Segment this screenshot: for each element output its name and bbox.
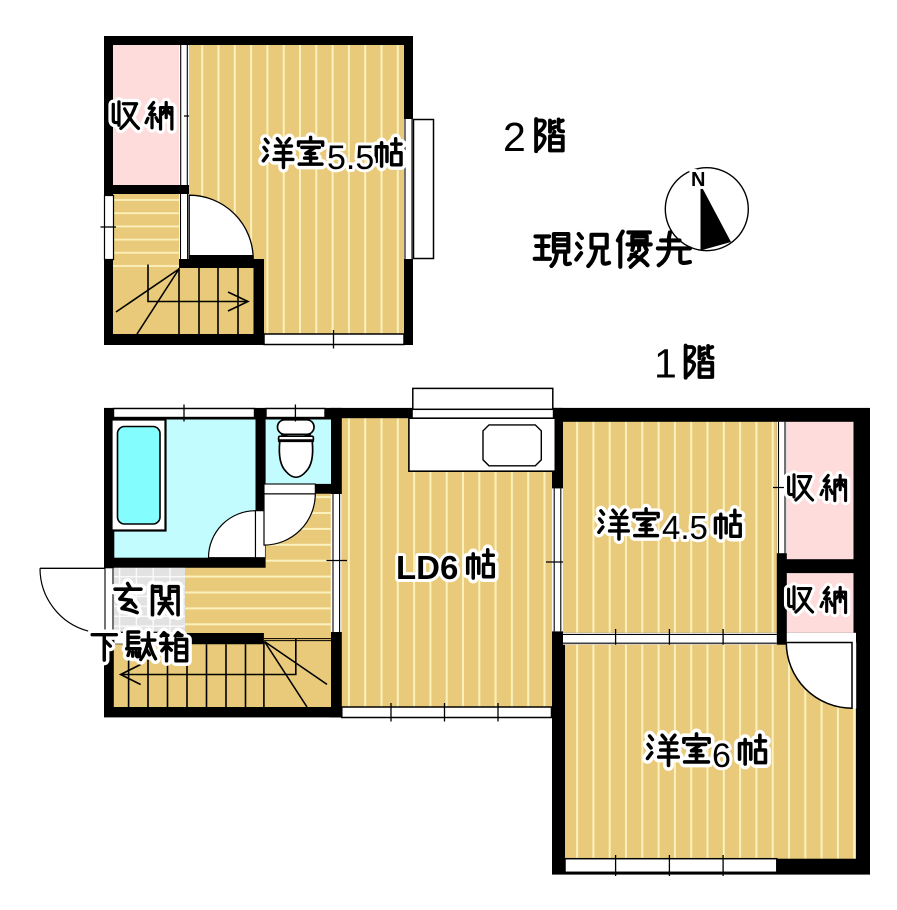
svg-text:4.5: 4.5 <box>662 509 708 546</box>
svg-text:2: 2 <box>503 114 526 160</box>
svg-text:LD6: LD6 <box>396 549 458 586</box>
svg-text:5.5: 5.5 <box>327 139 374 177</box>
svg-text:6: 6 <box>712 737 731 775</box>
svg-text:N: N <box>691 169 705 191</box>
svg-text:1: 1 <box>654 341 677 387</box>
